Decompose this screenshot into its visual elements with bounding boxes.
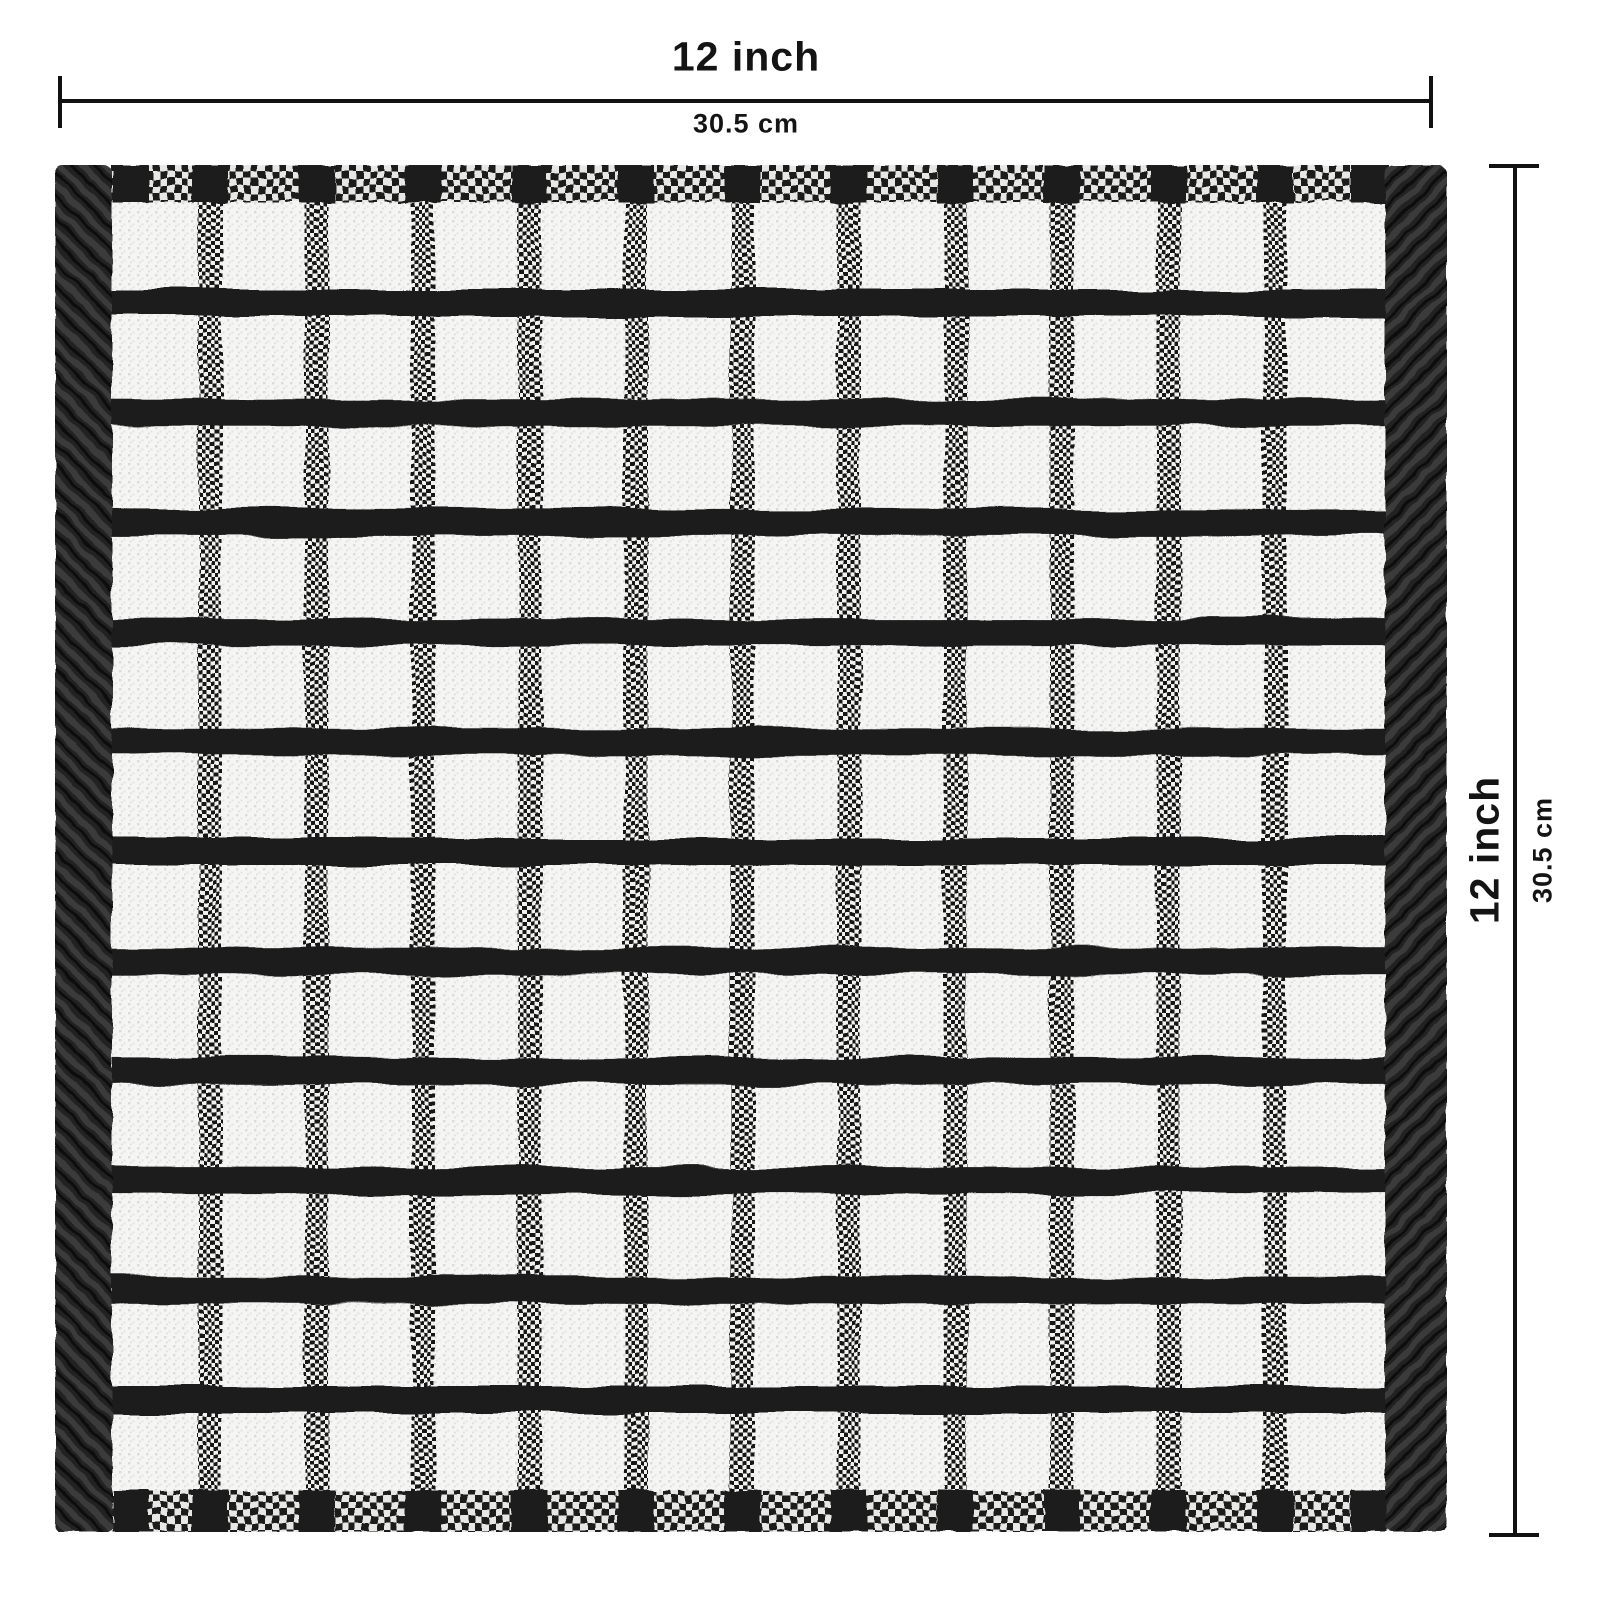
product-dimension-diagram: 12 inch 30.5 cm 12 inch 30.5 cm <box>0 0 1600 1600</box>
towel-image-container <box>55 165 1447 1532</box>
right-border <box>1385 165 1447 1532</box>
height-dimension-bottom-cap <box>1489 1533 1539 1537</box>
height-dimension-line <box>1513 164 1517 1537</box>
width-dimension-left-cap <box>58 76 62 128</box>
left-border <box>55 165 112 1532</box>
height-dimension-top-cap <box>1489 164 1539 168</box>
checkered-towel-photo <box>55 165 1447 1532</box>
width-dimension-right-cap <box>1429 76 1433 128</box>
height-inch-label: 12 inch <box>1465 776 1506 924</box>
top-hem-band <box>111 165 1389 203</box>
width-inch-label: 12 inch <box>672 37 820 78</box>
width-cm-label: 30.5 cm <box>693 111 799 138</box>
height-cm-label: 30.5 cm <box>1530 797 1557 903</box>
width-dimension-line <box>59 99 1433 103</box>
bottom-hem-band <box>111 1490 1389 1532</box>
